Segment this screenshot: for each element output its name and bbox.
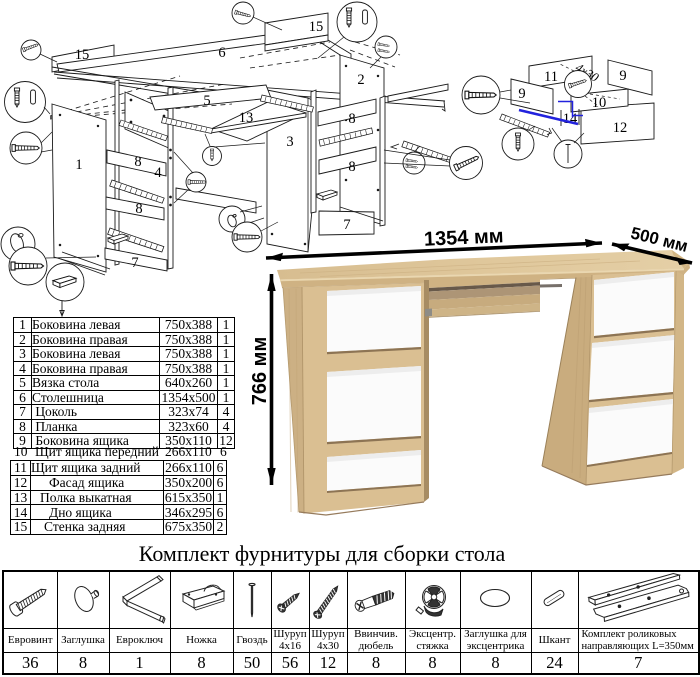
svg-text:1354 мм: 1354 мм [423,225,504,250]
svg-text:2: 2 [357,72,364,88]
svg-text:4: 4 [154,165,162,181]
svg-text:8: 8 [134,154,141,170]
svg-text:7: 7 [131,255,138,271]
svg-text:766 мм: 766 мм [249,337,271,406]
svg-text:8: 8 [135,201,142,217]
svg-text:9: 9 [518,86,525,102]
svg-text:6: 6 [218,45,225,61]
svg-text:12: 12 [613,120,628,136]
svg-text:1: 1 [75,157,82,173]
svg-text:3: 3 [286,134,293,150]
svg-text:5: 5 [203,93,210,109]
svg-text:10: 10 [592,95,607,111]
svg-text:8: 8 [348,111,355,127]
svg-text:9: 9 [619,68,626,84]
svg-text:8: 8 [348,159,355,175]
svg-text:15: 15 [309,19,324,35]
svg-text:11: 11 [544,69,558,85]
svg-text:13: 13 [239,110,254,126]
svg-text:7: 7 [343,217,350,233]
